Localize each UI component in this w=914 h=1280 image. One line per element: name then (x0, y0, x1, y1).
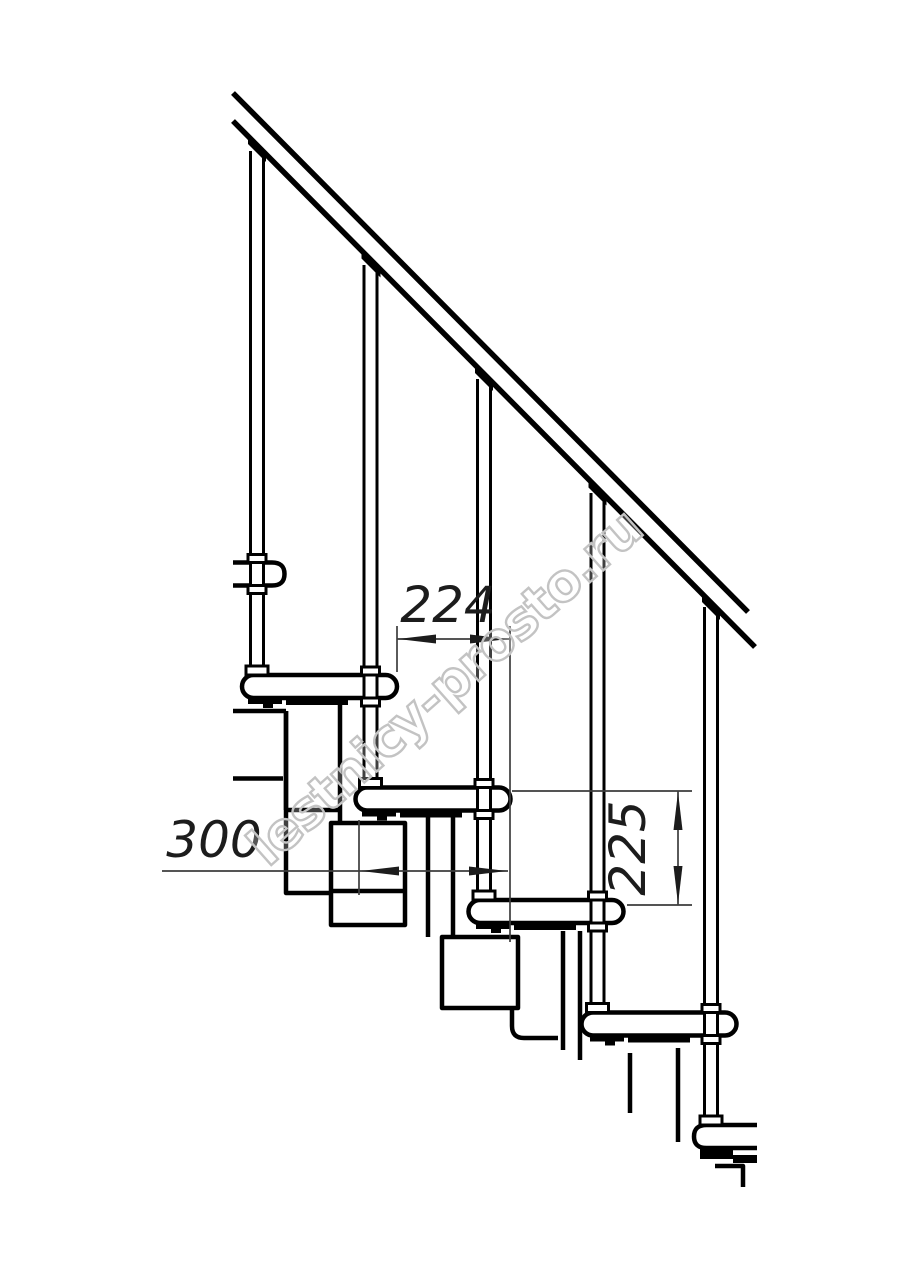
baluster-5-lower-sleeve (702, 1036, 720, 1044)
bracket-neck-tread-3 (424, 811, 444, 818)
bracket-tread-4 (476, 923, 510, 933)
baluster-4-base-collar (587, 1004, 609, 1013)
baluster-1-lower-sleeve (248, 586, 266, 594)
bracket-strip-tread-5 (628, 1038, 690, 1043)
baluster-1 (246, 151, 268, 675)
dim-225-arrow-up (674, 792, 683, 830)
baluster-2-upper-sleeve (362, 667, 380, 675)
module-neck-under-tread-3 (428, 817, 453, 937)
bracket-strip-tread-2 (286, 700, 348, 705)
tread-6-fragment (694, 1125, 757, 1148)
dim-225-arrow-down (674, 866, 683, 904)
handrail-lower-edge (233, 121, 755, 647)
module-neck-under-tread-4 (563, 931, 580, 1060)
dimension-225: 225 (512, 791, 692, 905)
bracket-tread-5 (590, 1036, 624, 1046)
bracket-tread-6-tab (733, 1155, 757, 1163)
handrail (233, 93, 755, 647)
baluster-4-lower-sleeve (589, 923, 607, 931)
baluster-1-base-collar (246, 666, 268, 675)
module-under-tread-4 (442, 937, 518, 1008)
module-cutoff-under-tread-6 (715, 1166, 743, 1187)
dim-225-label: 225 (599, 800, 657, 895)
bracket-tread-3 (362, 811, 396, 821)
baluster-5-base-collar (700, 1116, 722, 1125)
dim-224-arrow-left (398, 635, 436, 644)
baluster-5 (700, 607, 722, 1125)
staircase-side-elevation-drawing: 224 300 225 lestnicy-prosto.ru (0, 0, 914, 1280)
baluster-1-upper-sleeve (248, 555, 266, 563)
baluster-5-upper-sleeve (702, 1005, 720, 1013)
baluster-3-lower-sleeve (475, 811, 493, 819)
bracket-tread-6 (700, 1148, 733, 1159)
bracket-tread-2 (248, 698, 282, 708)
bracket-strip-tread-4 (514, 925, 576, 930)
baluster-2-lower-sleeve (362, 698, 380, 706)
baluster-3-upper-sleeve (475, 780, 493, 788)
baluster-3-base-collar (473, 891, 495, 900)
technical-drawing-canvas: 224 300 225 lestnicy-prosto.ru (0, 0, 914, 1280)
module-cutoff-under-tread-5 (630, 1048, 678, 1142)
module-under-tread-4-foot (512, 1008, 558, 1038)
